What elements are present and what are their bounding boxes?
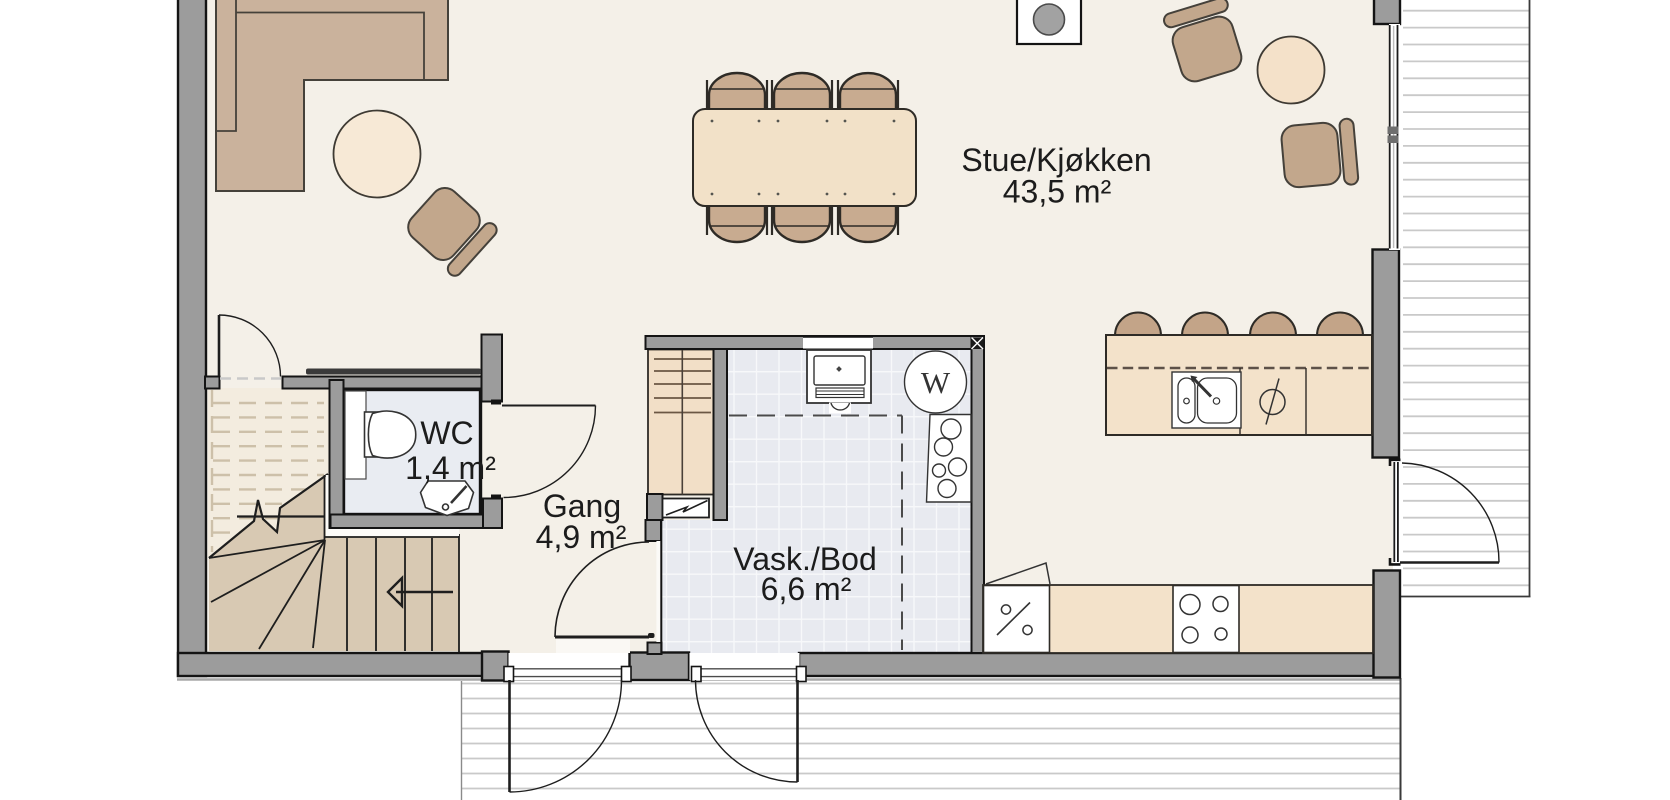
svg-text:W: W <box>921 365 951 400</box>
svg-text:1,4 m²: 1,4 m² <box>405 450 496 486</box>
svg-text:4,9 m²: 4,9 m² <box>536 519 627 555</box>
svg-text:WC: WC <box>420 415 473 451</box>
svg-text:43,5 m²: 43,5 m² <box>1003 174 1112 210</box>
svg-text:6,6 m²: 6,6 m² <box>761 571 852 607</box>
